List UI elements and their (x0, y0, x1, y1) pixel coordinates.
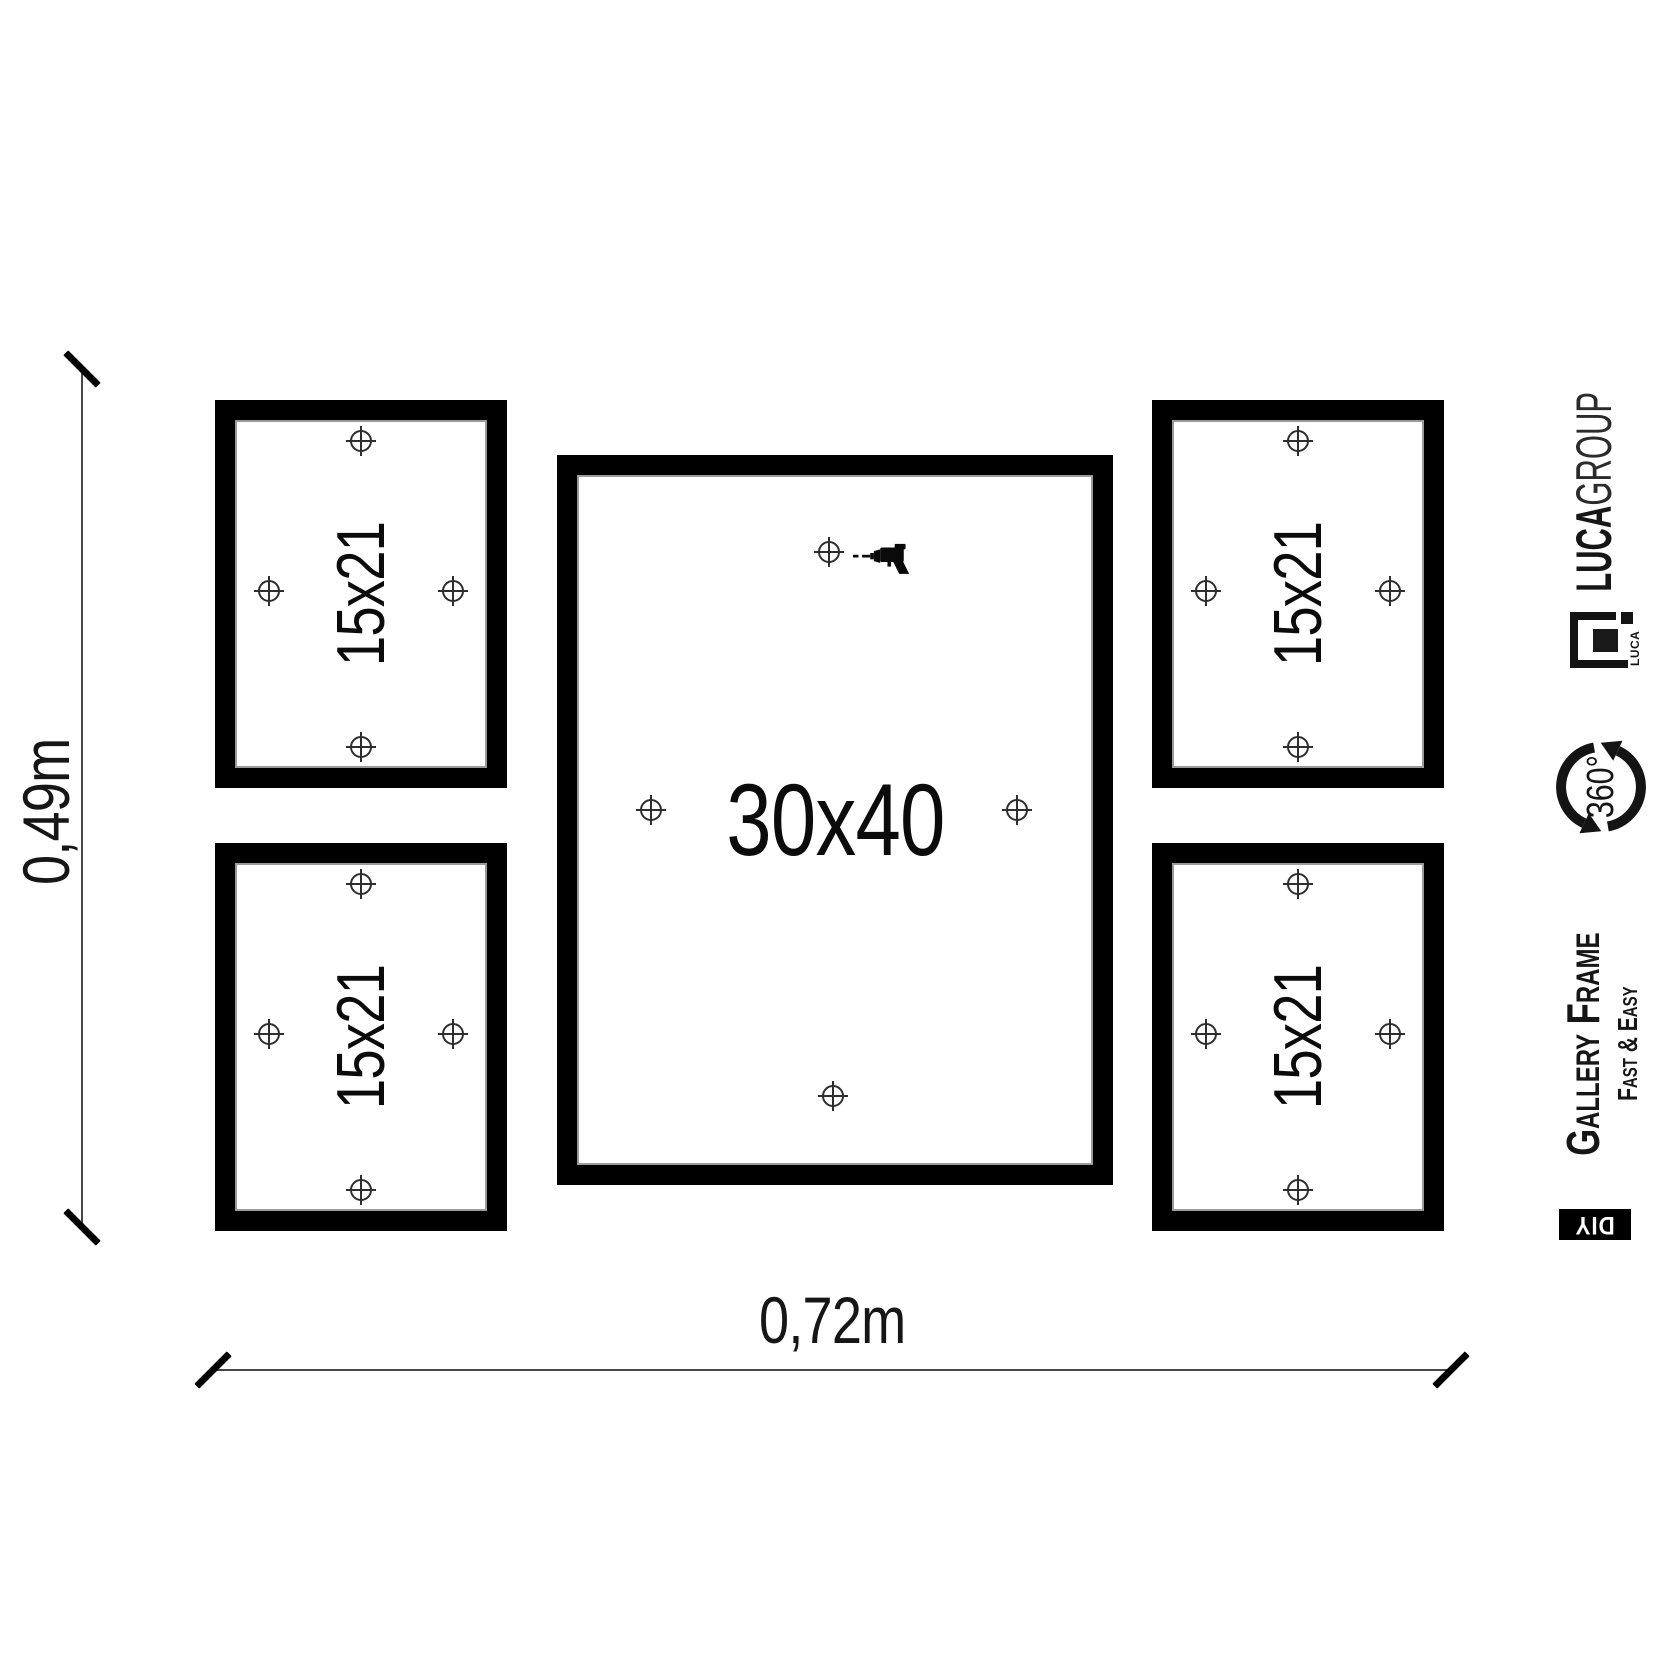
frame-size-label: 15x21 (235, 863, 487, 1211)
frame-15x21-bottom-left: 15x21 (215, 843, 507, 1231)
frame-15x21-top-right: 15x21 (1152, 400, 1444, 788)
hanging-plan-diagram: 15x21 15x21 30x40 (0, 0, 1680, 1680)
frame-30x40-center: 30x40 (557, 455, 1113, 1185)
frame-size-label: 15x21 (1172, 863, 1424, 1211)
frame-15x21-top-left: 15x21 (215, 400, 507, 788)
rotation-360-label: 360° (1542, 728, 1660, 846)
diy-badge-label: DIY (1575, 1210, 1615, 1239)
product-name: Gallery Frame (1556, 932, 1610, 1155)
luca-logo-text: LUCA (1628, 631, 1640, 666)
height-dimension-label: 0,49m (11, 702, 81, 922)
company-name: LUCAGROUP (1565, 392, 1623, 592)
width-dimension-label: 0,72m (712, 1285, 952, 1355)
width-dimension-line (213, 1369, 1451, 1371)
frame-size-label: 15x21 (1172, 420, 1424, 768)
luca-group-wordmark: LUCAGROUP (1570, 382, 1618, 602)
rotation-360-icon: 360° (1542, 728, 1660, 846)
frame-size-label: 30x40 (577, 475, 1093, 1165)
diy-badge: DIY (1559, 1209, 1631, 1240)
company-name-bold: LUCA (1566, 506, 1622, 592)
frame-15x21-bottom-right: 15x21 (1152, 843, 1444, 1231)
frame-size-label: 15x21 (235, 420, 487, 768)
luca-logo-icon: LUCA (1570, 612, 1640, 668)
product-tagline: Fast & Easy (1612, 987, 1644, 1102)
product-name-block: Gallery Frame Fast & Easy (1560, 894, 1640, 1194)
company-name-light: GROUP (1566, 392, 1622, 506)
